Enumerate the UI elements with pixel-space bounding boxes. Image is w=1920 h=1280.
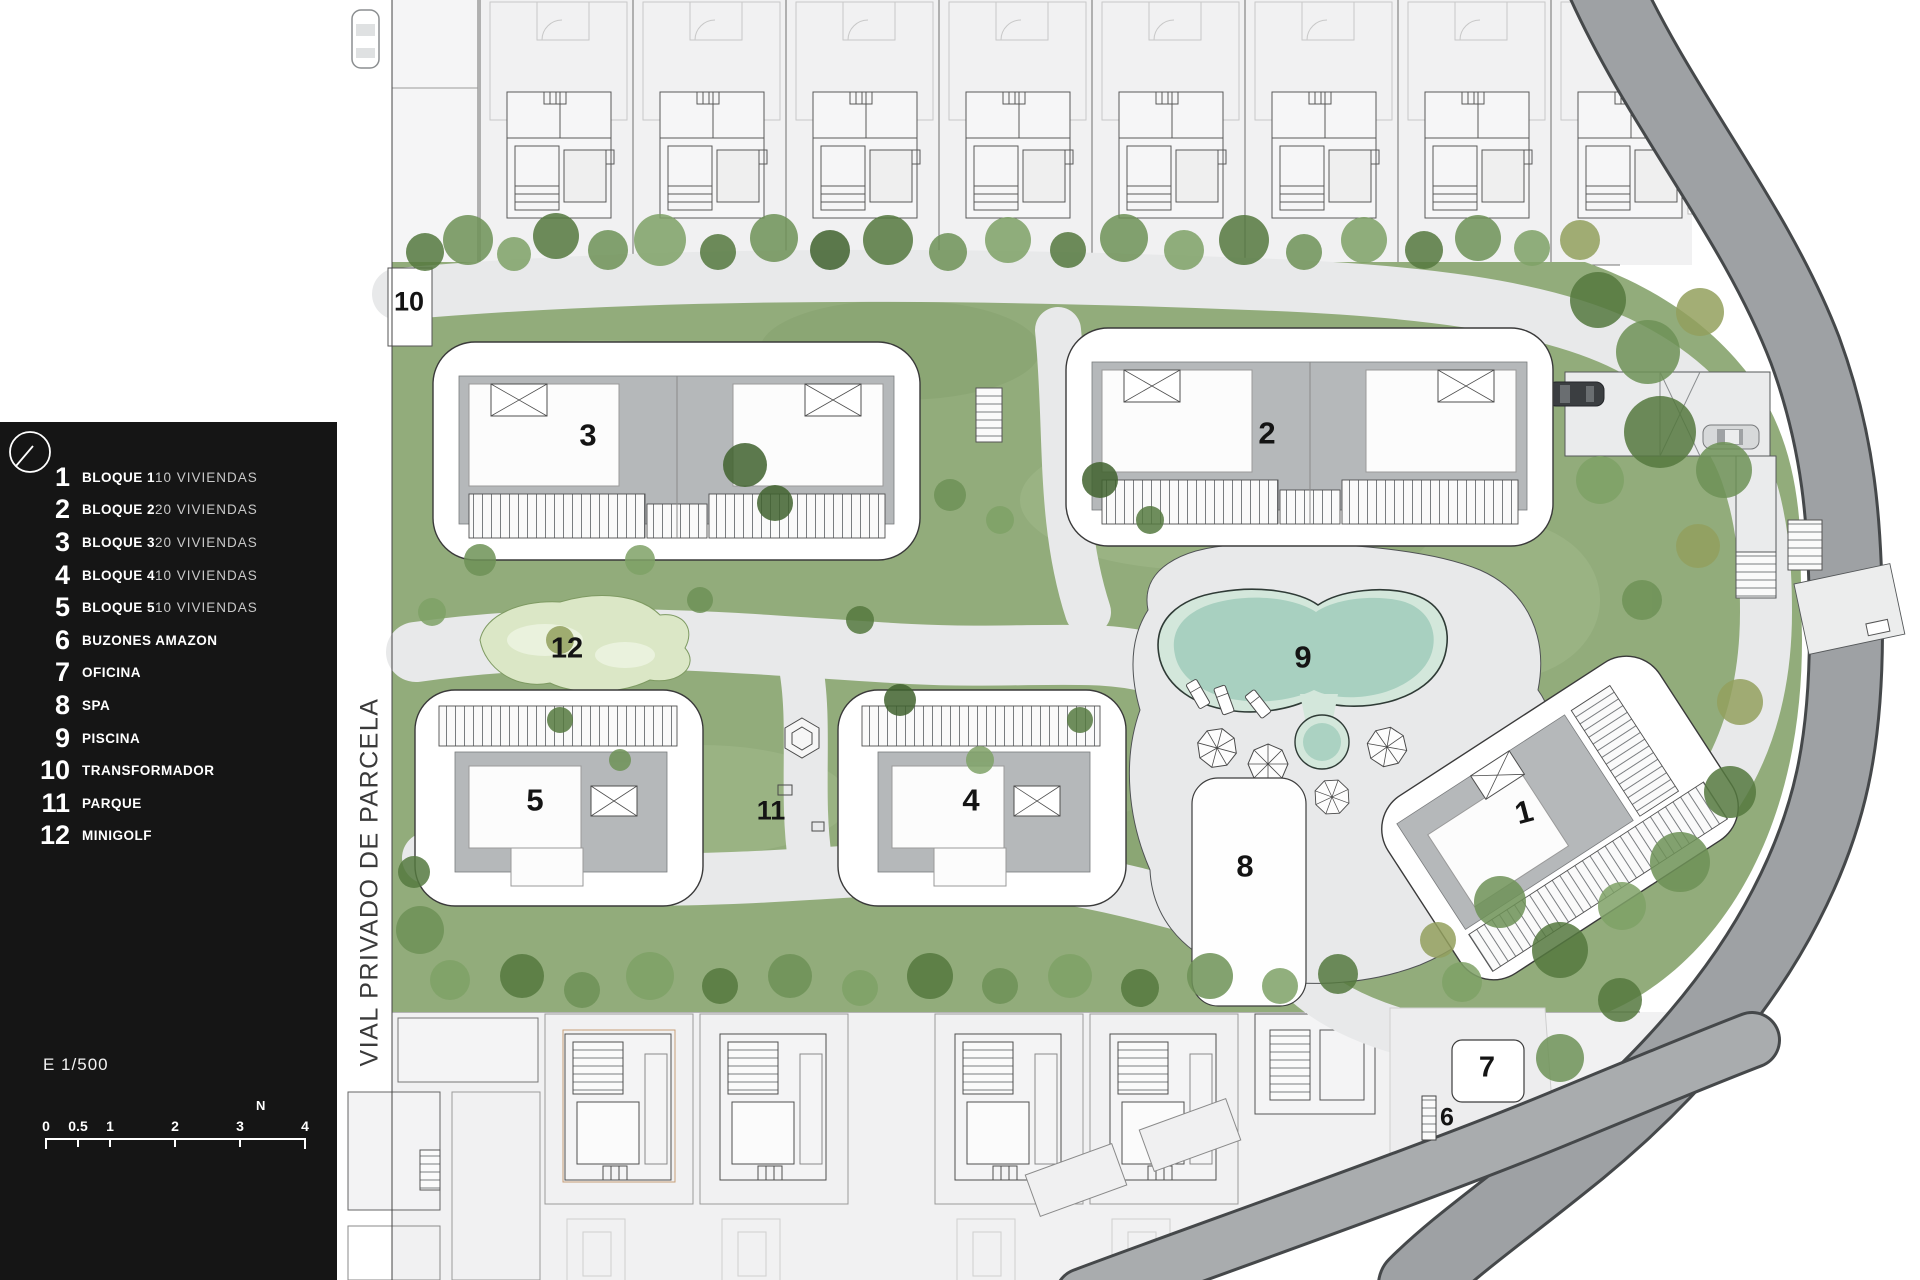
scale-bar-tick-label: 3 — [236, 1118, 244, 1134]
legend-item-label: PARQUE — [82, 796, 153, 811]
legend-item-label: BUZONES AMAZON — [82, 633, 218, 648]
legend-item-9: 9PISCINA — [0, 722, 337, 755]
plan-marker-pool-9: 9 — [1294, 642, 1311, 673]
north-label: N — [256, 1098, 265, 1113]
legend-item-number: 11 — [0, 790, 70, 817]
scale-bar-tick — [304, 1138, 306, 1149]
plan-marker-buzones-6: 6 — [1440, 1106, 1454, 1131]
legend-item-11: 11PARQUE — [0, 787, 337, 820]
legend-list: 1BLOQUE 110 VIVIENDAS2BLOQUE 220 VIVIEND… — [0, 461, 337, 852]
legend-item-label: MINIGOLF — [82, 828, 153, 843]
legend-item-10: 10TRANSFORMADOR — [0, 754, 337, 787]
minigolf-lane — [595, 642, 655, 668]
legend-item-number: 8 — [0, 692, 70, 719]
legend-item-12: 12MINIGOLF — [0, 820, 337, 853]
legend-item-sublabel: 10 VIVIENDAS — [155, 600, 258, 615]
building-block-3 — [433, 342, 920, 560]
legend-item-sublabel: 20 VIVIENDAS — [155, 535, 258, 550]
legend-item-label: BLOQUE 5 — [82, 600, 155, 615]
legend-item-sublabel: 10 VIVIENDAS — [155, 470, 258, 485]
legend-item-label: OFICINA — [82, 665, 153, 680]
legend-item-2: 2BLOQUE 220 VIVIENDAS — [0, 494, 337, 527]
plan-marker-minigolf-12: 12 — [551, 635, 583, 664]
legend-panel: 1BLOQUE 110 VIVIENDAS2BLOQUE 220 VIVIEND… — [0, 422, 337, 1280]
scale-bar-tick-label: 4 — [301, 1118, 309, 1134]
stairs-icon — [976, 388, 1002, 442]
legend-item-sublabel: 10 VIVIENDAS — [155, 568, 258, 583]
plan-marker-spa-8: 8 — [1236, 851, 1253, 882]
legend-item-number: 3 — [0, 529, 70, 556]
legend-item-number: 5 — [0, 594, 70, 621]
legend-item-number: 12 — [0, 822, 70, 849]
scale-bar-tick — [77, 1138, 79, 1147]
legend-item-5: 5BLOQUE 510 VIVIENDAS — [0, 591, 337, 624]
legend-item-number: 10 — [0, 757, 70, 784]
north-compass-icon — [0, 422, 60, 482]
legend-item-number: 6 — [0, 627, 70, 654]
legend-item-8: 8SPA — [0, 689, 337, 722]
legend-item-number: 9 — [0, 725, 70, 752]
car-dark — [1548, 382, 1604, 406]
legend-item-label: TRANSFORMADOR — [82, 763, 215, 778]
legend-item-number: 7 — [0, 659, 70, 686]
scale-bar-tick — [45, 1138, 47, 1149]
scale-bar-tick-label: 1 — [106, 1118, 114, 1134]
legend-item-label: BLOQUE 3 — [82, 535, 155, 550]
legend-item-7: 7OFICINA — [0, 657, 337, 690]
legend-item-label: BLOQUE 2 — [82, 502, 155, 517]
legend-item-number: 2 — [0, 496, 70, 523]
plan-marker-transformador-10: 10 — [394, 289, 424, 316]
mailboxes — [1422, 1096, 1436, 1140]
legend-item-3: 3BLOQUE 320 VIVIENDAS — [0, 526, 337, 559]
plan-marker-parque-11: 11 — [757, 798, 786, 825]
site-plan-page: 123456789101112 VIAL PRIVADO DE PARCELA … — [0, 0, 1920, 1280]
legend-item-label: BLOQUE 1 — [82, 470, 155, 485]
street-label: VIAL PRIVADO DE PARCELA — [356, 698, 385, 1067]
scale-bar-line — [45, 1138, 304, 1140]
scale-bar-tick — [174, 1138, 176, 1147]
scale-bar-tick — [109, 1138, 111, 1147]
legend-item-label: PISCINA — [82, 731, 153, 746]
plan-marker-block-3: 3 — [579, 420, 596, 451]
legend-item-sublabel: 20 VIVIENDAS — [155, 502, 258, 517]
perimeter-stairs — [1788, 520, 1822, 570]
scale-bar-tick-label: 2 — [171, 1118, 179, 1134]
plan-marker-block-5: 5 — [526, 785, 543, 816]
legend-item-label: SPA — [82, 698, 153, 713]
legend-item-6: 6BUZONES AMAZON — [0, 624, 337, 657]
scale-text: E 1/500 — [43, 1055, 109, 1075]
car-top-left — [352, 10, 379, 68]
scale-bar-tick — [239, 1138, 241, 1147]
plan-marker-oficina-7: 7 — [1479, 1054, 1495, 1083]
plan-marker-block-2: 2 — [1258, 418, 1275, 449]
scale-bar-tick-label: 0 — [42, 1118, 50, 1134]
legend-item-label: BLOQUE 4 — [82, 568, 155, 583]
plan-marker-block-4: 4 — [962, 785, 979, 816]
scale-bar-tick-label: 0.5 — [68, 1118, 87, 1134]
legend-item-4: 4BLOQUE 410 VIVIENDAS — [0, 559, 337, 592]
legend-item-number: 4 — [0, 562, 70, 589]
